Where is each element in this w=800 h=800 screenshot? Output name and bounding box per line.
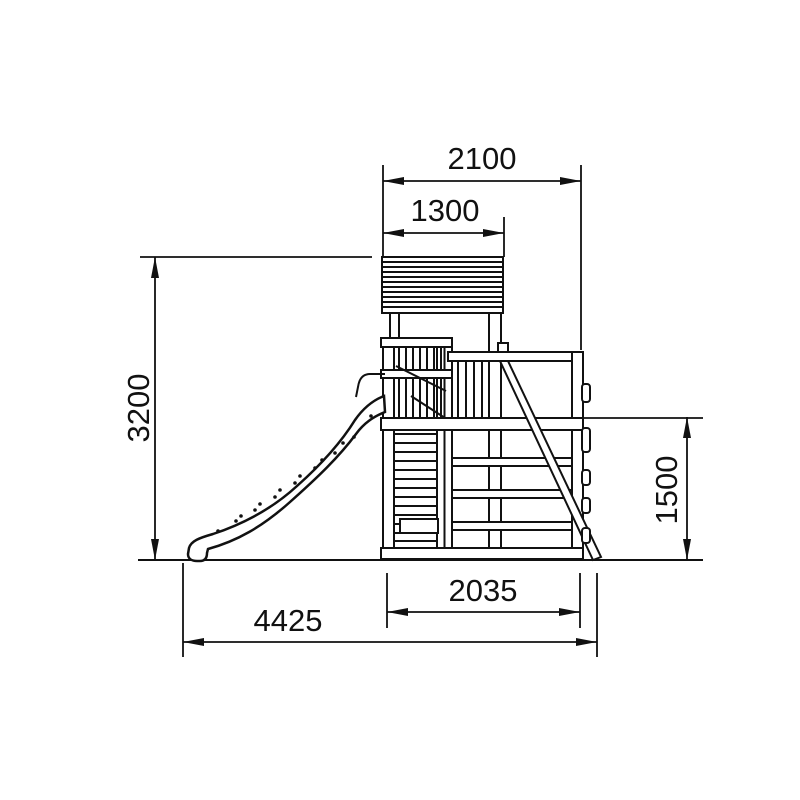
dim-label-platform-height: 1500 [649,456,684,525]
extension-lines [140,165,703,657]
dim-label-roof-width: 1300 [411,193,480,228]
tower-top-rail [381,338,452,347]
roof-post-left [390,313,399,341]
climbing-hold [582,498,590,513]
slide [188,374,385,561]
climbing-rung-2 [452,490,572,498]
climbing-rung-3 [452,522,572,530]
tower-panel-insert [400,519,438,533]
bottom-beam [381,548,583,559]
dim-label-overall-height: 3200 [121,374,156,443]
climbing-hold [582,384,590,402]
technical-drawing-page: 2100 1300 3200 1500 2035 4425 [0,0,800,800]
slide-chute [188,396,385,561]
roof-panel [382,257,503,313]
climbing-hold [582,528,590,543]
frame-post-bracket [498,343,508,352]
climbing-hold [582,428,590,452]
tower-railing-balusters [399,347,441,418]
roof [382,257,503,341]
tower [381,338,452,560]
dim-label-base-depth: 2035 [449,573,518,608]
dim-label-top-width: 2100 [448,141,517,176]
playset-side-elevation-drawing: 2100 1300 3200 1500 2035 4425 [0,0,800,800]
dim-label-overall-depth: 4425 [254,603,323,638]
frame-balusters [458,361,482,418]
frame-top-beam [448,352,583,361]
climbing-hold [582,470,590,485]
platform-beam [381,418,583,430]
